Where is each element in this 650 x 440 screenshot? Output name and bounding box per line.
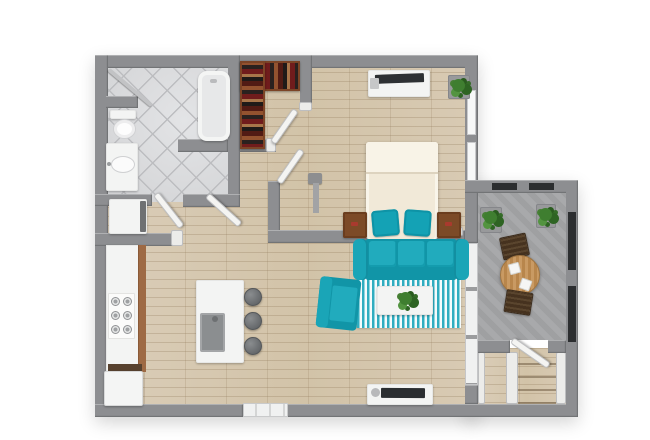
- wall-balcony-top: [465, 180, 578, 193]
- wall-balcony-bottom-right: [548, 340, 566, 353]
- stair-divider-wall: [506, 352, 518, 404]
- sink-basin-icon: [111, 156, 135, 173]
- kitchen-island: [196, 280, 244, 363]
- closet-shelf-left: [240, 61, 265, 149]
- entry-door: [243, 403, 288, 417]
- sofa-cushion: [398, 241, 425, 267]
- burner-icon: [123, 325, 132, 334]
- armchair-cushion: [329, 285, 358, 322]
- armchair: [315, 276, 361, 331]
- bathtub-faucet-icon: [210, 79, 217, 83]
- bedroom-tv-icon: [375, 73, 424, 84]
- bar-stool: [244, 337, 262, 355]
- sofa-arm-left: [353, 239, 368, 280]
- burner-icon: [123, 311, 132, 320]
- refrigerator: [104, 371, 143, 406]
- wall-cap-closet-right: [299, 102, 312, 111]
- toilet: [113, 119, 136, 139]
- balcony-top-glass-right: [529, 183, 554, 190]
- wall-living-right-base: [465, 385, 478, 404]
- floorplan-canvas: [0, 0, 650, 440]
- burner-icon: [111, 311, 120, 320]
- dresser-accessory-icon: [370, 78, 379, 89]
- tv-console: [367, 384, 433, 405]
- balcony-top-glass-left: [492, 183, 517, 190]
- stair-wall-left: [478, 352, 485, 404]
- burner-icon: [111, 297, 120, 306]
- stair-wall-right: [556, 352, 566, 404]
- living-tv-icon: [381, 388, 425, 398]
- bedroom-plant: [452, 79, 465, 92]
- sofa-cushion: [427, 241, 454, 267]
- floor-lamp-stem: [313, 183, 319, 213]
- washer-dryer: [109, 199, 147, 234]
- window-bedroom-lower: [467, 142, 476, 184]
- plate-icon: [508, 262, 521, 275]
- island-faucet-icon: [212, 316, 218, 322]
- counter-wood-edge: [138, 245, 146, 372]
- balcony-plant-right: [539, 208, 552, 221]
- wall-outer-bottom-right: [288, 404, 578, 417]
- sink-faucet-icon: [107, 162, 111, 166]
- burner-icon: [123, 297, 132, 306]
- balcony-chair-bottom: [503, 289, 533, 316]
- railing-lower: [568, 286, 576, 342]
- bathtub: [198, 71, 230, 141]
- console-speaker-icon: [371, 388, 380, 397]
- bar-stool: [244, 288, 262, 306]
- bar-stool: [244, 312, 262, 330]
- nightstand-knob-icon: [445, 222, 452, 226]
- sofa-cushion: [369, 241, 396, 267]
- bed-pillow-right: [403, 209, 432, 237]
- nightstand-knob-icon: [351, 222, 358, 226]
- wall-cap-hallway: [171, 230, 183, 246]
- burner-icon: [111, 325, 120, 334]
- sofa-arm-right: [454, 239, 469, 280]
- wall-closet-right: [300, 55, 312, 105]
- plate-icon: [518, 277, 532, 291]
- bed-pillow-left: [371, 209, 400, 237]
- coffee-table-plant: [399, 292, 412, 305]
- nightstand-right: [437, 212, 461, 238]
- railing-upper: [568, 212, 576, 270]
- bed-blanket-fold: [366, 142, 438, 174]
- washer-front-icon: [140, 201, 146, 232]
- vanity: [106, 143, 138, 191]
- nightstand-left: [343, 212, 367, 238]
- balcony-plant-left: [484, 211, 497, 224]
- toilet-tank: [110, 110, 136, 119]
- wall-toilet-stub: [106, 96, 138, 108]
- bistro-table: [500, 255, 540, 295]
